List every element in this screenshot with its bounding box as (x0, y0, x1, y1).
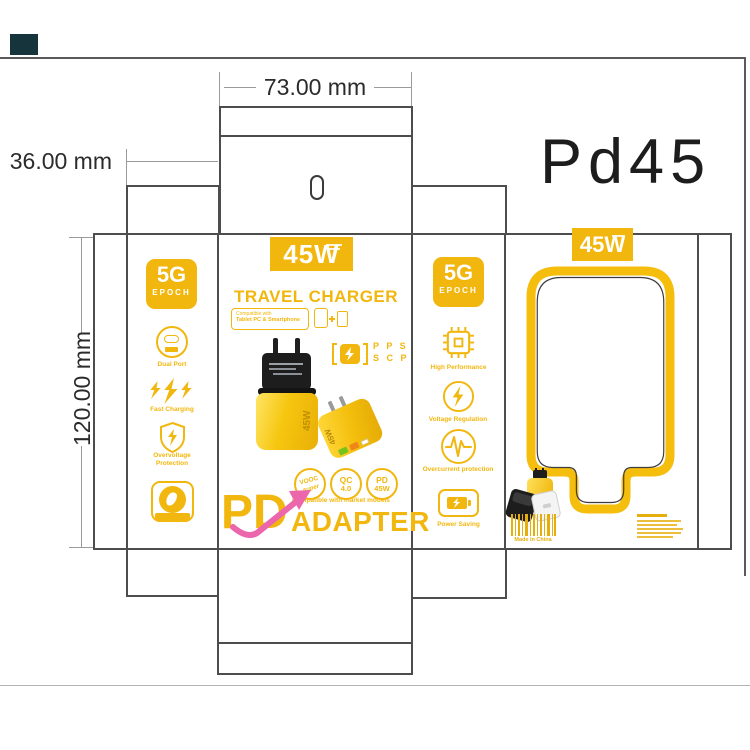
power-badge-front: 45W (270, 237, 353, 271)
barcode-bar (518, 514, 520, 536)
fine-print-block (637, 514, 685, 542)
badge-5g-epoch-right: 5G EPOCH (433, 257, 484, 307)
badge-5g-epoch-left: 5G EPOCH (146, 259, 197, 309)
seal-figure (165, 491, 179, 507)
feature-label: ORIGINAL (160, 522, 186, 527)
usb-a-slot (165, 347, 178, 352)
barcode-bar (540, 514, 542, 536)
dim-height-tick-top (69, 237, 95, 238)
fast-charging-icon (150, 378, 194, 404)
battery-nub (468, 500, 471, 506)
phone-icon (337, 311, 348, 327)
packaging-dieline-canvas: Pd45 73.00 mm 36.00 mm 120.00 mm 5G EPOC… (0, 0, 750, 750)
dual-port-icon (156, 326, 188, 358)
fine-print-line (637, 520, 681, 522)
plus-v (331, 316, 333, 322)
badge-epoch-text: EPOCH (433, 286, 484, 295)
page-border-right (744, 57, 746, 576)
dim-width-ext-right (411, 72, 412, 107)
dieline-divider (697, 234, 699, 549)
flap-bottom-strip (217, 642, 413, 675)
battery-saving-icon (438, 489, 479, 517)
flap-bottom-left (126, 548, 219, 597)
dim-width-ext-left (219, 72, 220, 107)
barcode-bar (525, 514, 528, 536)
fine-print-line (637, 524, 677, 526)
page-border-top (0, 57, 746, 59)
spec-line (269, 368, 296, 370)
pps-scp-logo: P P S S C P (332, 341, 412, 367)
qc-badge: QC 4.0 (330, 468, 362, 500)
badge-subtext-bar (326, 244, 342, 246)
fine-print-line (637, 532, 681, 534)
front-title: TRAVEL CHARGER (218, 287, 414, 307)
product-code: Pd45 (540, 126, 711, 198)
pps-text: P P S (373, 341, 408, 351)
lightning-square-icon (340, 344, 360, 364)
compat-line2: Tablet PC & Smartphone (236, 317, 308, 324)
pd-badge: PD 45W (366, 468, 398, 500)
eu-charger-image: 45W (255, 338, 319, 450)
fine-print-line (637, 536, 673, 538)
badge-subtext-bar (328, 248, 340, 250)
dim-depth-line (127, 161, 218, 162)
bracket-right-icon (363, 343, 368, 365)
voltage-regulation-icon (442, 380, 475, 413)
hang-slot (310, 175, 324, 200)
overcurrent-wave-icon (440, 428, 477, 465)
pd-watt: 45W (368, 485, 396, 493)
barcode-bar (522, 514, 523, 536)
chip-icon (442, 326, 475, 359)
barcode-bar (554, 514, 556, 536)
flap-top-small (219, 106, 413, 137)
fine-print-line (637, 528, 683, 530)
dim-height-tick-bottom (69, 547, 95, 548)
seal-band: ORIGINAL (155, 513, 190, 520)
mini-pin (542, 468, 544, 472)
mini-pin (535, 468, 537, 472)
spec-line (269, 363, 303, 365)
barcode-bar (530, 514, 531, 536)
qc-version: 4.0 (332, 485, 360, 493)
badge-5g-text: 5G (146, 259, 197, 288)
badge-5g-text: 5G (433, 257, 484, 286)
feature-label: Overvoltage Protection (139, 452, 205, 467)
overvoltage-shield-icon (157, 421, 188, 454)
flap-top-right (411, 185, 507, 235)
seal-circle (159, 486, 186, 513)
barcode-bar (552, 514, 553, 536)
feature-label: Voltage Regulation (408, 416, 508, 424)
scp-text: S C P (373, 353, 409, 363)
dim-height-label: 120.00 mm (69, 334, 95, 446)
barcode-bar (537, 514, 538, 536)
feature-label: Overcurrent protection (420, 466, 496, 474)
fine-print-line (637, 514, 667, 517)
color-swatch (10, 34, 38, 55)
flap-bottom-right (411, 548, 507, 599)
dim-depth-ext (126, 149, 127, 186)
spec-line (273, 373, 302, 375)
port-indicator-white (360, 438, 369, 446)
page-border-bottom (0, 685, 750, 686)
flap-top-left (126, 185, 220, 235)
feature-label: Fast Charging (134, 406, 210, 414)
badge-epoch-text: EPOCH (146, 288, 197, 297)
feature-label: Dual Port (136, 361, 208, 369)
dieline-divider (217, 234, 219, 549)
feature-label: Power Saving (414, 521, 503, 529)
dieline-divider (504, 234, 506, 549)
feature-label: High Performance (414, 364, 503, 372)
port-indicator-orange (349, 442, 360, 451)
plus-icon (329, 316, 335, 322)
charger-side-label: 45W (320, 420, 343, 452)
dim-depth-label: 36.00 mm (0, 148, 112, 175)
dieline-divider (126, 234, 128, 549)
original-seal-icon: ORIGINAL (151, 481, 194, 522)
pink-check-arrow-icon (227, 487, 319, 543)
usb-c-slot (164, 335, 179, 343)
barcode (511, 514, 556, 536)
compatibility-box: Compatible with Tablet PC & Smartphone (231, 308, 309, 330)
flap-bottom-front (217, 548, 413, 644)
power-badge-back: 45W (572, 228, 633, 261)
barcode-bar (515, 514, 516, 536)
mini-port (543, 503, 552, 509)
badge-subtext-bar (612, 235, 625, 237)
battery-body (447, 497, 467, 509)
dim-width-line-right (374, 87, 412, 88)
tablet-icon (314, 308, 328, 328)
barcode-bar (544, 514, 545, 536)
barcode-bar (547, 514, 550, 536)
dim-width-label: 73.00 mm (252, 74, 378, 101)
plug-head (262, 353, 311, 390)
barcode-bar (533, 514, 535, 536)
barcode-bar (511, 514, 513, 536)
bracket-left-icon (332, 343, 337, 365)
made-in-label: Made in China (503, 537, 563, 543)
